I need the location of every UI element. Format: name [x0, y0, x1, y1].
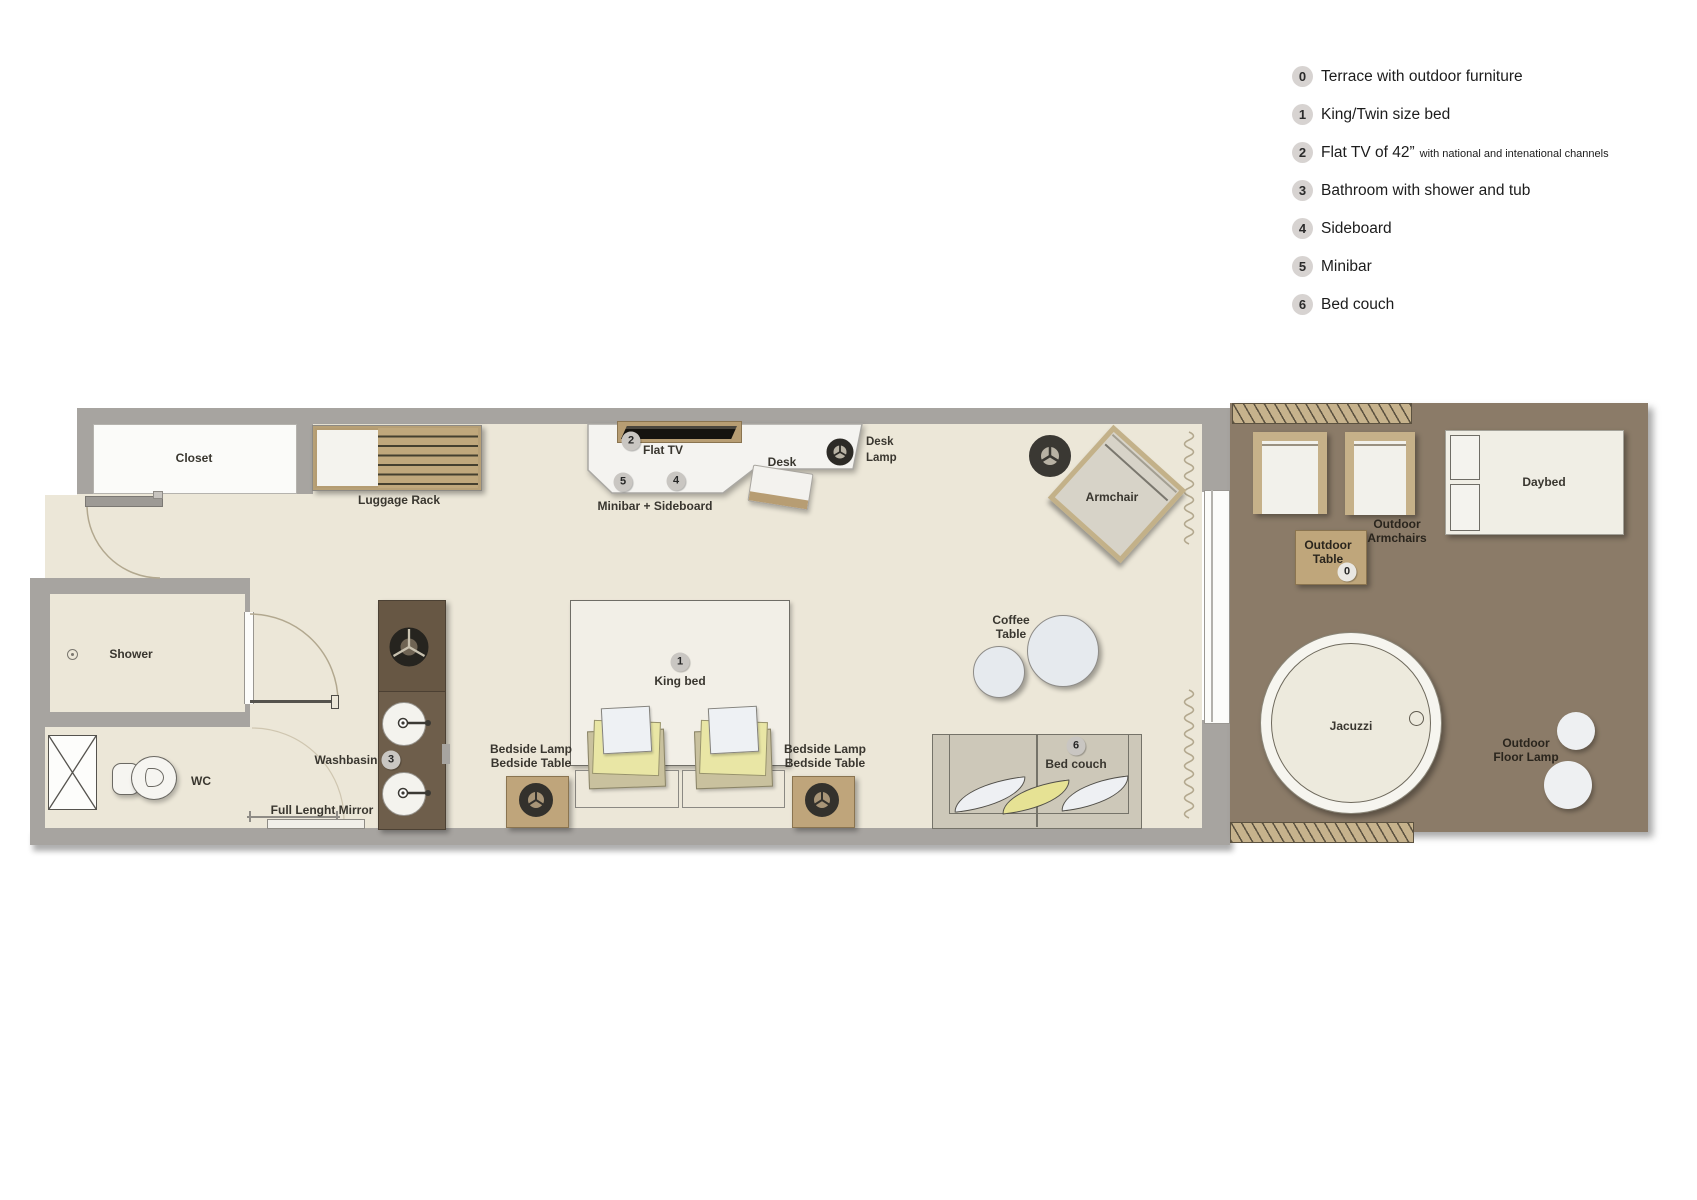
outdoor-floor-lamp-label-line1: Outdoor [1502, 736, 1549, 750]
coffee-table-label-line2: Table [996, 627, 1026, 641]
bed-badge: 1 [671, 653, 690, 672]
coffee-table-label-line1: Coffee [992, 613, 1029, 627]
desk-lamp-label-line1: Desk [866, 436, 894, 450]
outdoor-armchair-back-line [1354, 444, 1406, 446]
full-length-mirror [267, 819, 365, 829]
daybed-label: Daybed [1522, 475, 1565, 489]
floor-lamp-icon [1026, 432, 1074, 480]
outdoor-floor-lamp [1557, 712, 1595, 750]
jacuzzi-label: Jacuzzi [1330, 719, 1373, 733]
floor-plan-page: 0 Terrace with outdoor furniture 1 King/… [0, 0, 1697, 1200]
shower-door-gap [244, 612, 254, 704]
closet-label: Closet [176, 451, 213, 465]
luggage-rack-cushion [315, 428, 380, 488]
legend-badge: 0 [1292, 66, 1313, 87]
daybed-pillow [1450, 435, 1480, 480]
bedside-table-label: Bedside Table [491, 756, 571, 770]
pillow-top [708, 706, 759, 755]
minibar-sideboard-label: Minibar + Sideboard [597, 499, 712, 513]
bedside-lamp-icon [516, 780, 556, 820]
legend-label: King/Twin size bed [1321, 106, 1450, 123]
legend-badge: 1 [1292, 104, 1313, 125]
pillow-top [601, 706, 652, 755]
closet-wall-right [295, 424, 313, 494]
desk-label: Desk [768, 455, 797, 469]
legend-label: Bathroom with shower and tub [1321, 182, 1530, 199]
right-wall-top [1202, 408, 1230, 492]
bedside-lamp-label: Bedside Lamp [784, 742, 866, 756]
daybed-pillow [1450, 484, 1480, 531]
shower-label: Shower [109, 647, 152, 661]
outdoor-table-label-line2: Table [1313, 552, 1343, 566]
flat-tv-label: Flat TV [643, 443, 683, 457]
minibar-badge: 5 [614, 473, 633, 492]
legend-label: Bed couch [1321, 296, 1394, 313]
legend-badge: 5 [1292, 256, 1313, 277]
faucet-icon [381, 771, 433, 815]
legend-label: Minibar [1321, 258, 1372, 275]
tv-badge: 2 [622, 432, 641, 451]
legend-label: Sideboard [1321, 220, 1392, 237]
king-bed-label: King bed [654, 674, 705, 688]
mirror-tick-left [249, 811, 251, 822]
bottom-wall [30, 828, 1230, 845]
luggage-rack [312, 425, 482, 491]
legend-label-suffix: with national and intenational channels [1420, 148, 1609, 160]
window-mullion [1211, 490, 1213, 722]
shaft-box [48, 735, 97, 810]
legend-badge: 4 [1292, 218, 1313, 239]
bathroom-door-handle [331, 695, 339, 709]
coffee-table-small [973, 646, 1025, 698]
window [1204, 490, 1230, 724]
luggage-rack-slats [378, 428, 478, 488]
outdoor-armchairs-label-line1: Outdoor [1373, 517, 1420, 531]
outdoor-armchairs-label-line2: Armchairs [1367, 531, 1426, 545]
jacuzzi-jet [1409, 711, 1424, 726]
vanity-wall-tab [442, 744, 450, 764]
right-wall-bottom [1202, 720, 1230, 845]
wc-label: WC [191, 774, 211, 788]
legend-badge: 6 [1292, 294, 1313, 315]
desk-lamp-label-line2: Lamp [866, 452, 897, 466]
closet-wall-left [77, 424, 93, 494]
faucet-icon [381, 701, 433, 745]
vanity-fan-icon [387, 625, 431, 669]
desk-lamp-icon [825, 437, 855, 467]
outdoor-floor-lamp-label-line2: Floor Lamp [1493, 750, 1558, 764]
entry-door-leaf [85, 496, 163, 507]
outdoor-armchair [1253, 432, 1327, 514]
sideboard-badge: 4 [667, 472, 686, 491]
bedside-table-label: Bedside Table [785, 756, 865, 770]
bed-couch-divider [1036, 734, 1038, 827]
armchair-label: Armchair [1086, 490, 1139, 504]
legend-label: Terrace with outdoor furniture [1321, 68, 1523, 85]
couch-badge: 6 [1067, 737, 1086, 756]
outdoor-floor-lamp [1544, 761, 1592, 809]
outdoor-armchair [1345, 432, 1415, 515]
shower-head-icon [67, 649, 78, 660]
outdoor-table-label-line1: Outdoor [1304, 538, 1351, 552]
terrace-deck-strip-top [1232, 403, 1412, 424]
terrace-deck-strip-bottom [1230, 822, 1414, 843]
bedside-lamp-icon [802, 780, 842, 820]
luggage-rack-label: Luggage Rack [358, 493, 440, 507]
bathroom-badge: 3 [382, 751, 401, 770]
bedside-lamp-label: Bedside Lamp [490, 742, 572, 756]
washbasin-label: Washbasin [315, 753, 378, 767]
legend-label: Flat TV of 42” [1321, 144, 1415, 161]
shaft-x-icon [49, 736, 96, 809]
legend-badge: 2 [1292, 142, 1313, 163]
bathroom-door-leaf [250, 700, 338, 703]
mirror-label: Full Lenght Mirror [271, 803, 374, 817]
legend-badge: 3 [1292, 180, 1313, 201]
coffee-table-large [1027, 615, 1099, 687]
outdoor-armchair-back-line [1262, 444, 1318, 446]
entry-door-hinge [153, 491, 163, 499]
bed-couch-label: Bed couch [1045, 757, 1106, 771]
